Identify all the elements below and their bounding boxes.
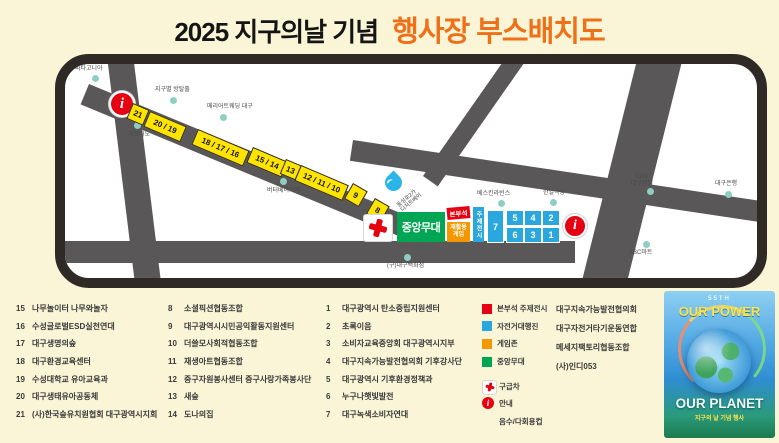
directory-column-2: 8소셜픽션협동조합 9대구광역시시민공익활동지원센터 10더쓸모사회적협동조합 … <box>168 300 311 423</box>
directory-row: 12중구자원봉사센터 중구사랑가족봉사단 <box>168 370 311 388</box>
directory-row: 17대구생명의숲 <box>16 335 157 353</box>
booth-name: 대구광역시 탄소중립지원센터 <box>342 303 440 314</box>
booth-name: 대구녹색소비자연대 <box>342 409 408 420</box>
directory-row: 4대구지속가능발전협의회 기후강사단 <box>326 353 462 371</box>
booth-number: 10 <box>168 339 184 348</box>
directory-row: 19수성대학교 유아교육과 <box>16 370 157 388</box>
earth-globe-illustration <box>687 329 751 393</box>
booth-name: 재생아트협동조합 <box>184 356 243 367</box>
partner-row: 대구자전거타기운동연합 <box>556 319 637 338</box>
partner-row: 메세지팩토리협동조합 <box>556 338 637 357</box>
booth-name: 더쓸모사회적협동조합 <box>184 338 258 349</box>
booth-number: 20 <box>16 392 32 401</box>
water-drop-icon <box>482 415 495 428</box>
landmark-bank: 대구은행 <box>715 181 737 188</box>
directory-row: 18대구환경교육센터 <box>16 353 157 371</box>
directory-row: 9대구광역시시민공익활동지원센터 <box>168 318 311 336</box>
booth-4: 4 <box>524 210 542 226</box>
directory-row: 3소비자교육중앙회 대구광역시지부 <box>326 335 462 353</box>
landmark-abc-mart: ABC마트 <box>629 250 652 257</box>
page-title: 2025 지구의날 기념행사장 부스배치도 <box>0 8 779 50</box>
booth-name: 누구나햇빛발전 <box>342 391 394 402</box>
legend-zone: 자전거대행진 <box>482 318 547 336</box>
partner-row: (사)인디053 <box>556 357 637 376</box>
landmark-cgv: CGV 대구한일 <box>631 174 653 187</box>
directory-row: 2초록이음 <box>326 318 462 336</box>
road-bottom-horizontal <box>55 241 575 263</box>
legend-zone: 게임존 <box>482 335 547 353</box>
booth-number: 16 <box>16 322 32 331</box>
first-aid-station <box>363 214 393 242</box>
street-label-dongseongno: 동성로2가 디저트베이 <box>396 188 423 213</box>
booth-number: 7 <box>326 410 342 419</box>
legend-icon-row: 음수/다회용컵 <box>482 413 547 431</box>
directory-row: 13새숲 <box>168 388 311 406</box>
hq-booth: 본부석 <box>447 206 471 220</box>
landmark-baskin: 베스킨라빈스 <box>477 191 510 198</box>
theme-exhibition-booth: 주제전시 <box>473 207 484 242</box>
landmark-dot <box>92 75 99 82</box>
poster-top-small: 55TH <box>664 296 775 302</box>
booth-7: 7 <box>487 210 504 243</box>
legend-zone: 본부석 주제전시 <box>482 300 547 318</box>
event-poster: 55TH OUR POWER OUR PLANET 지구의 날 기념 행사 <box>664 291 775 438</box>
directory-row: 1대구광역시 탄소중립지원센터 <box>326 300 462 318</box>
booth-number: 15 <box>16 304 32 313</box>
directory-column-3: 1대구광역시 탄소중립지원센터 2초록이음 3소비자교육중앙회 대구광역시지부 … <box>326 300 462 423</box>
directory-row: 5대구광역시 기후환경정책과 <box>326 370 462 388</box>
legend-swatch-orange <box>482 339 492 349</box>
directory-row: 7대구녹색소비자연대 <box>326 406 462 424</box>
landmark-dot <box>647 188 654 195</box>
landmark-old-dept-store: (구)대구백화점 <box>387 263 424 270</box>
booth-number: 4 <box>326 357 342 366</box>
booth-number: 13 <box>168 392 184 401</box>
booth-name: 대구환경교육센터 <box>32 356 91 367</box>
landmark-cgv-line2: 대구한일 <box>631 181 653 187</box>
legend-zone: 중앙무대 <box>482 353 547 371</box>
booth-number: 1 <box>326 304 342 313</box>
legend-label: 음수/다회용컵 <box>499 416 542 427</box>
legend-swatch-green <box>482 357 492 367</box>
main-stage: 중앙무대 <box>397 212 445 242</box>
landmark-dot <box>550 199 557 206</box>
directory-column-1: 15나무놀이터 나무와놀자 16수성글로벌ESD실천연대 17대구생명의숲 18… <box>16 300 157 423</box>
directory-row: 10더쓸모사회적협동조합 <box>168 335 311 353</box>
info-icon-glyph: i <box>573 218 577 234</box>
booth-number: 14 <box>168 410 184 419</box>
landmark-wedding: 메리어트웨딩 대구 <box>207 104 253 111</box>
info-icon-glyph: i <box>120 96 124 113</box>
legend-label: 게임존 <box>497 338 518 349</box>
booth-number: 3 <box>326 339 342 348</box>
directory-row: 15나무놀이터 나무와놀자 <box>16 300 157 318</box>
directory-row: 14도나의집 <box>168 406 311 424</box>
ambulance-cross-icon <box>482 380 495 393</box>
booth-name: 소셜픽션협동조합 <box>184 303 243 314</box>
poster-title-bottom: OUR PLANET <box>664 396 775 411</box>
booth-number: 17 <box>16 339 32 348</box>
booth-name: 새숲 <box>184 391 199 402</box>
legend-icon-row: i 안내 <box>482 395 547 413</box>
landmark-dot <box>498 200 505 207</box>
booth-name: 중구자원봉사센터 중구사랑가족봉사단 <box>184 374 311 385</box>
booth-number: 18 <box>16 357 32 366</box>
landmark-dot <box>643 241 650 248</box>
game-zone-booth: 재활용 게임 <box>447 222 470 242</box>
booth-name: 소비자교육중앙회 대구광역시지부 <box>342 338 455 349</box>
landmark-bakery: 버터베이커리 <box>267 188 300 195</box>
booth-name: 대구생태유아공동체 <box>32 391 98 402</box>
partner-organizations: 대구지속가능발전협의회 대구자전거타기운동연합 메세지팩토리협동조합 (사)인디… <box>556 300 637 376</box>
directory-row: 8소셜픽션협동조합 <box>168 300 311 318</box>
booth-5: 5 <box>506 210 524 226</box>
booth-number: 8 <box>168 304 184 313</box>
legend-icons: 구급차 i 안내 음수/다회용컵 <box>482 377 547 430</box>
water-drop-icon <box>381 170 405 194</box>
booth-number: 11 <box>168 357 184 366</box>
landmark-escape-room: 지구별 방탈출 <box>155 87 190 94</box>
legend-label: 중앙무대 <box>497 356 525 367</box>
booth-number: 19 <box>16 375 32 384</box>
booth-name: 대구광역시시민공익활동지원센터 <box>184 321 294 332</box>
legend-label: 구급차 <box>499 381 520 392</box>
booth-number: 5 <box>326 375 342 384</box>
directory-row: 16수성글로벌ESD실천연대 <box>16 318 157 336</box>
info-icon: i <box>482 397 495 410</box>
directory-row: 21(사)한국숲유치원협회 대구광역시지회 <box>16 406 157 424</box>
legend-label: 자전거대행진 <box>497 321 538 332</box>
booth-1: 1 <box>542 227 560 243</box>
booth-number: 2 <box>326 322 342 331</box>
booth-name: 수성대학교 유아교육과 <box>32 374 108 385</box>
landmark-dot <box>404 254 411 261</box>
booth-6: 6 <box>506 227 524 243</box>
poster-title-top: OUR POWER <box>664 304 775 319</box>
directory-row: 20대구생태유아공동체 <box>16 388 157 406</box>
landmark-dot <box>170 97 177 104</box>
venue-map: 파타고니아 지구별 방탈출 지오다노 메리어트웨딩 대구 버터베이커리 베스킨라… <box>55 54 767 288</box>
booth-2: 2 <box>542 210 560 226</box>
landmark-patagonia: 파타고니아 <box>75 66 103 73</box>
booth-name: 대구광역시 기후환경정책과 <box>342 374 433 385</box>
landmark-dot <box>725 191 732 198</box>
info-icon: i <box>563 214 587 238</box>
booth-number: 6 <box>326 392 342 401</box>
booth-name: (사)한국숲유치원협회 대구광역시지회 <box>32 409 157 420</box>
red-cross-icon <box>367 217 389 239</box>
directory-row: 11재생아트협동조합 <box>168 353 311 371</box>
title-prefix: 2025 지구의날 기념 <box>174 17 378 47</box>
game-zone-line1: 재활용 <box>450 225 467 232</box>
game-zone-line2: 게임 <box>453 232 464 239</box>
booth-name: 대구생명의숲 <box>32 338 76 349</box>
booth-3: 3 <box>524 227 542 243</box>
poster-caption: 지구의 날 기념 행사 <box>664 413 775 422</box>
landmark-hanil: 한일극장 <box>543 190 565 197</box>
booth-number: 21 <box>16 410 32 419</box>
landmark-dot <box>280 178 287 185</box>
landmark-cgv-line1: CGV <box>636 174 649 180</box>
directory-row: 6누구나햇빛발전 <box>326 388 462 406</box>
booth-number: 9 <box>168 322 184 331</box>
booth-name: 초록이음 <box>342 321 371 332</box>
map-legend: 본부석 주제전시 자전거대행진 게임존 중앙무대 구급차 i 안내 음수/다회용… <box>482 300 547 430</box>
landmark-giordano: 지오다노 <box>128 132 150 139</box>
legend-label: 안내 <box>499 398 513 409</box>
legend-swatch-red <box>482 304 492 314</box>
legend-icon-row: 구급차 <box>482 377 547 395</box>
landmark-dot <box>220 114 227 121</box>
partner-row: 대구지속가능발전협의회 <box>556 300 637 319</box>
booth-name: 도나의집 <box>184 409 213 420</box>
booth-name: 대구지속가능발전협의회 기후강사단 <box>342 356 462 367</box>
legend-swatch-blue <box>482 321 492 331</box>
title-main: 행사장 부스배치도 <box>392 16 605 48</box>
booth-name: 수성글로벌ESD실천연대 <box>32 321 115 332</box>
booth-number: 12 <box>168 375 184 384</box>
booth-name: 나무놀이터 나무와놀자 <box>32 303 108 314</box>
legend-label: 본부석 주제전시 <box>497 303 547 314</box>
